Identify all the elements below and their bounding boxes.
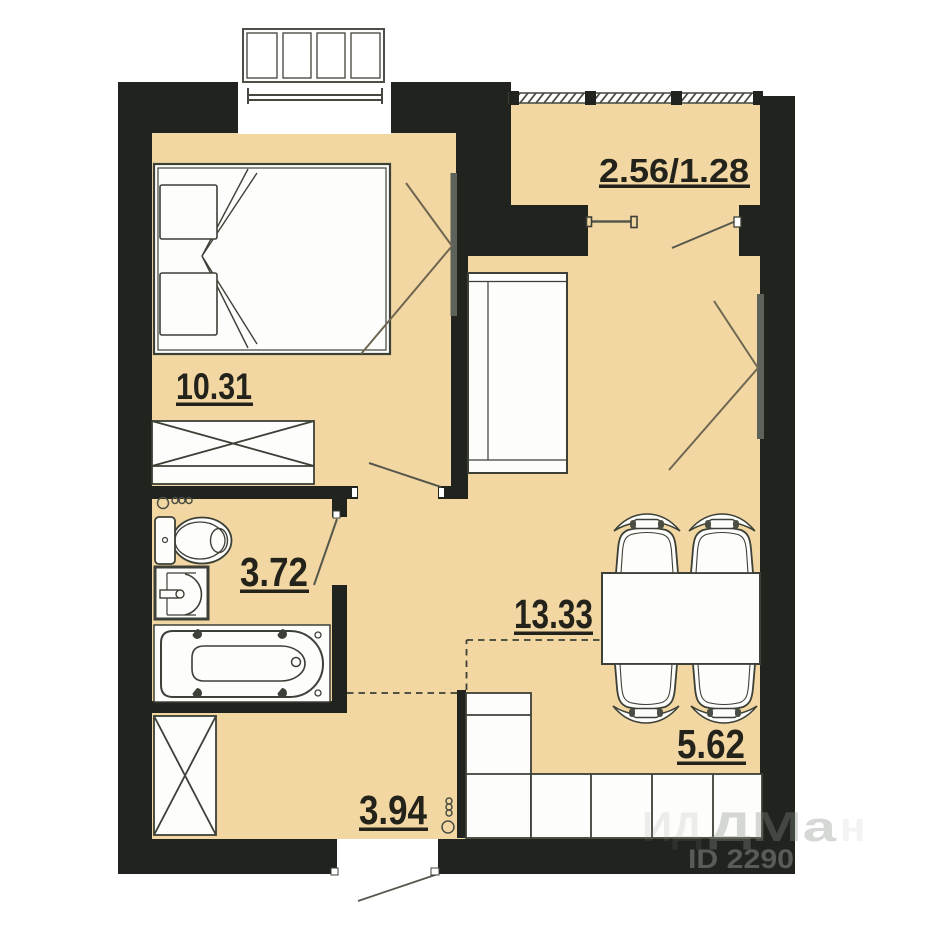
svg-text:3.72: 3.72 bbox=[240, 549, 308, 595]
svg-text:ИД: ИД bbox=[642, 803, 702, 850]
svg-text:ID 2290: ID 2290 bbox=[688, 844, 794, 874]
svg-text:ДМа: ДМа bbox=[709, 803, 837, 850]
svg-text:н: н bbox=[840, 803, 865, 850]
svg-text:2.56/1.28: 2.56/1.28 bbox=[599, 152, 749, 189]
svg-text:3.94: 3.94 bbox=[359, 787, 427, 833]
svg-text:13.33: 13.33 bbox=[514, 591, 593, 637]
svg-text:10.31: 10.31 bbox=[176, 366, 252, 407]
svg-text:5.62: 5.62 bbox=[677, 721, 745, 767]
